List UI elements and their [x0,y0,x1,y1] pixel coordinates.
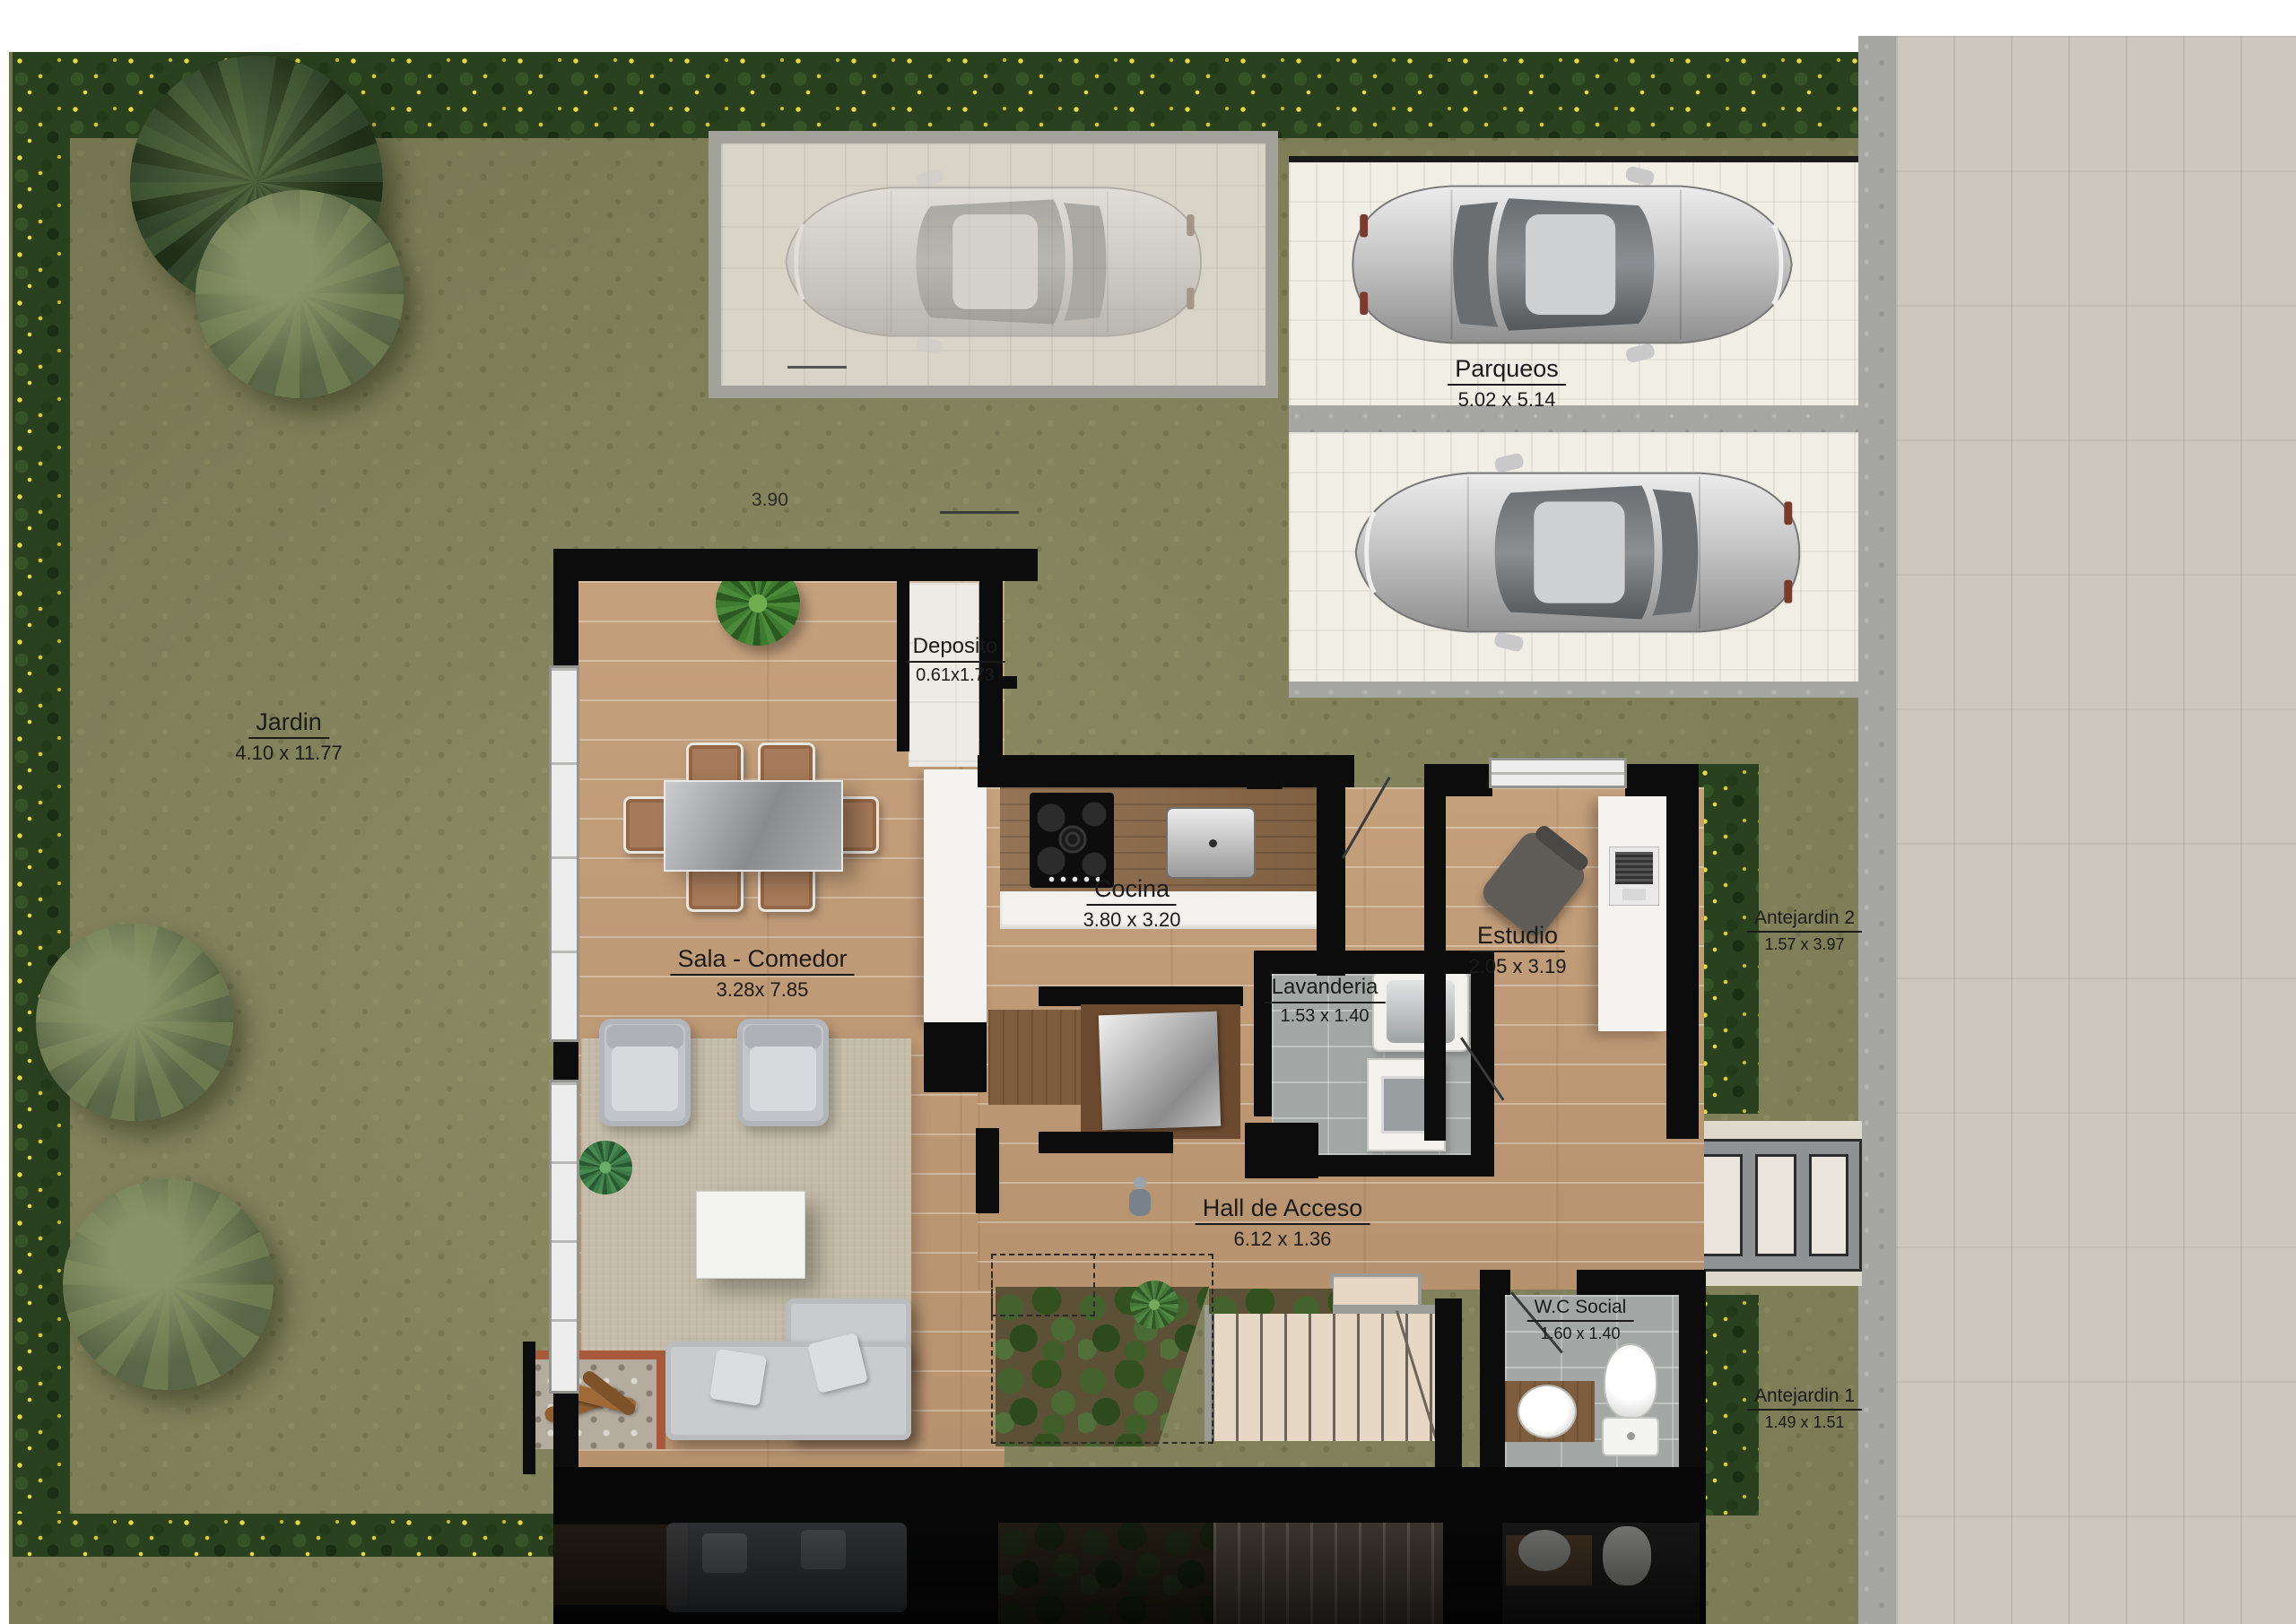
stair-side-wall [1435,1298,1462,1469]
person-head [1134,1177,1146,1189]
room-dims: 1.57 x 3.97 [1747,933,1862,954]
kitchen-island [924,769,987,1022]
sofa-body [665,1342,911,1440]
armchair [737,1019,829,1126]
label-lavanderia: Lavanderia 1.53 x 1.40 [1265,976,1386,1027]
wall-porch-stub-top [1666,1112,1699,1139]
label-deposito: Deposito 0.61x1.73 [906,635,1005,686]
stall-top-edge [1289,156,1858,162]
floor-plant-icon [578,1141,632,1194]
label-jardin: Jardin 4.10 x 11.77 [235,708,342,765]
wall-lavanderia-right [1471,951,1494,1177]
entry-walkway [1686,1139,1862,1272]
room-dims: 4.10 x 11.77 [235,739,342,765]
coffee-table [696,1191,805,1279]
floor-plan-scene: Parqueos 5.02 x 5.14 Jardin 4.10 x 11.77… [0,0,2296,1624]
wall-wc-right [1679,1270,1706,1472]
laptop-icon [1609,847,1659,906]
round-bush [196,190,404,398]
reflection-fade [553,1467,1706,1624]
sink-drain [1209,839,1217,847]
dining-chair [686,865,744,912]
walkway-panel [1755,1154,1796,1256]
dim-390: 3.90 [752,490,788,511]
dim-line [940,511,1019,514]
room-name: W.C Social [1527,1297,1634,1322]
nook-bench-bottom [1039,1132,1173,1153]
room-name: Lavanderia [1265,976,1386,1003]
label-cocina: Cocina 3.80 x 3.20 [1083,875,1181,932]
wall-lavanderia-top [1254,951,1480,974]
laptop-keyboard [1615,852,1653,884]
wall-sala-top [553,549,1038,581]
room-dims: 1.49 x 1.51 [1747,1411,1862,1432]
estudio-window [1489,758,1627,788]
label-antejardin-1: Antejardin 1 1.49 x 1.51 [1747,1385,1862,1432]
island-end-block [924,1022,987,1092]
armchair-cushion [750,1046,815,1111]
nook-table [1081,1004,1240,1139]
garden-tree-low [63,1179,274,1390]
wall-house-right [1666,764,1699,1126]
room-dims: 3.80 x 3.20 [1083,906,1181,932]
room-name: Hall de Acceso [1196,1194,1370,1225]
label-parqueos: Parqueos 5.02 x 5.14 [1448,355,1566,412]
wall-kitchen-top [978,755,1354,787]
label-sala-comedor: Sala - Comedor 3.28x 7.85 [670,945,854,1002]
person-figure [1126,1175,1153,1218]
carport-mark-line [787,366,847,369]
label-estudio: Estudio 2.05 x 3.19 [1469,922,1567,978]
room-name: Parqueos [1448,355,1566,386]
toilet-tank-icon [1602,1417,1659,1456]
stall-bottom-edge [1289,682,1858,698]
wall-kitchen-column [1317,787,1345,976]
room-name: Jardin [248,708,329,739]
walkway-panel [1701,1154,1743,1256]
parked-car-upper-icon [1326,163,1824,366]
walkway-panel [1809,1154,1848,1256]
room-dims: 5.02 x 5.14 [1448,386,1566,412]
wall-hall-left-stub [976,1128,999,1213]
armchair-back [744,1025,822,1048]
wall-left-low [553,1390,578,1480]
label-hall-acceso: Hall de Acceso 6.12 x 1.36 [1196,1194,1370,1251]
wall-estudio-left [1424,764,1446,1141]
wall-chunk-cocina-hall [1245,1123,1318,1178]
wall-sala-topleft [553,549,578,668]
nook-bench-top [1039,986,1243,1006]
parked-car-lower-icon [1326,448,1824,656]
hedge-bottom-left [13,1514,556,1557]
wall-fireplace-left [523,1342,535,1474]
flush-button [1627,1432,1635,1440]
laundry-sink [1372,971,1469,1052]
wall-deposito-notch [1003,676,1017,689]
wall-estudio-top-left [1424,764,1492,796]
wall-left-mid [553,1038,578,1083]
stall-divider [1289,405,1858,432]
laptop-trackpad [1622,889,1646,900]
section-cut-reflection [553,1467,1706,1624]
room-name: Antejardin 1 [1747,1385,1862,1411]
hedge-left [13,52,70,1555]
toilet-bowl-icon [1604,1343,1657,1419]
armchair-cushion [612,1046,677,1111]
armchair-back [606,1025,683,1048]
room-name: Estudio [1470,922,1565,952]
wall-wc-left [1480,1270,1505,1472]
kitchen-sink-icon [1166,807,1256,879]
armchair [599,1019,691,1126]
study-desk [1598,796,1668,1031]
cooktop-icon [1030,793,1114,888]
label-antejardin-2: Antejardin 2 1.57 x 3.97 [1747,908,1862,954]
room-name: Cocina [1087,875,1177,906]
wc-basin-icon [1518,1385,1577,1438]
room-dims: 0.61x1.73 [906,663,1005,686]
room-dims: 2.05 x 3.19 [1469,952,1567,978]
sliding-door-upper [549,665,579,1042]
porch-step-top [1686,1121,1862,1139]
sidewalk [1896,36,2296,1624]
sliding-door-lower [549,1080,579,1394]
dining-table [664,780,843,872]
room-name: Sala - Comedor [670,945,854,976]
nook-table-top [1099,1012,1221,1131]
room-dims: 3.28x 7.85 [670,976,854,1002]
ghost-car-icon [758,160,1224,364]
room-dims: 1.53 x 1.40 [1265,1003,1386,1027]
dining-chair [758,865,815,912]
overhang-dashed-inner [991,1254,1095,1316]
garden-tree-mid [36,924,233,1121]
room-dims: 1.60 x 1.40 [1527,1322,1634,1343]
room-name: Deposito [906,635,1005,663]
person-body [1129,1189,1151,1216]
curb-strip [1858,36,1896,1624]
label-wc-social: W.C Social 1.60 x 1.40 [1527,1297,1634,1343]
planter-strip [1209,1289,1333,1314]
room-dims: 6.12 x 1.36 [1196,1225,1370,1251]
staircase [1205,1305,1439,1441]
sofa-pillow [709,1349,767,1406]
room-name: Antejardin 2 [1747,908,1862,933]
porch-step-bottom [1686,1272,1862,1286]
kitchen-bench [988,1010,1089,1105]
